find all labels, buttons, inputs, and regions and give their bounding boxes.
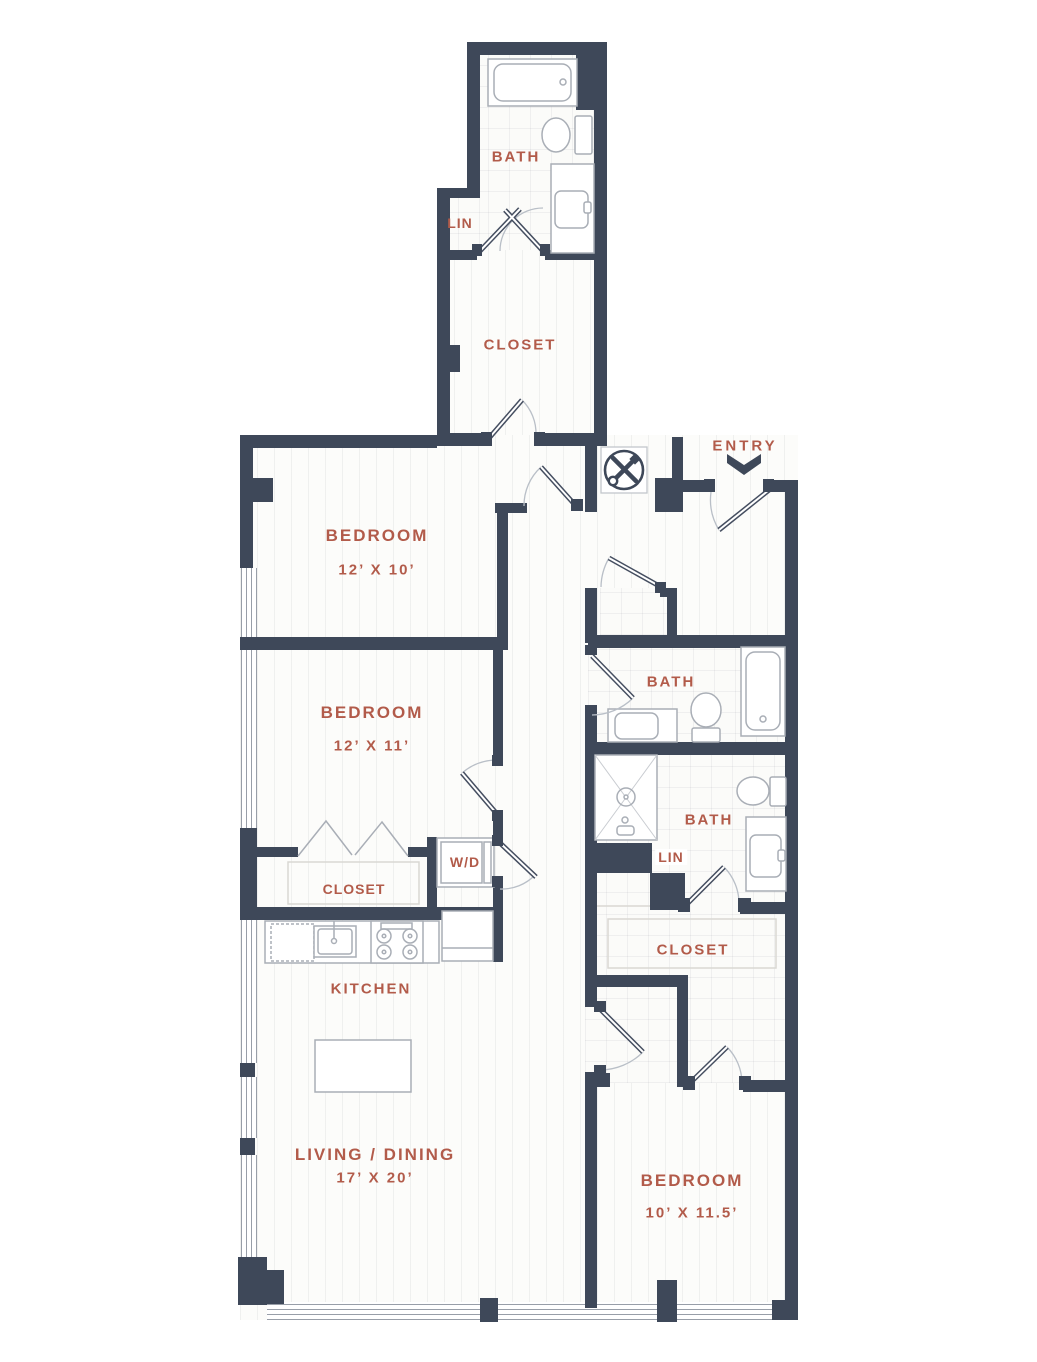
wall-segment <box>493 650 503 762</box>
window <box>241 1155 257 1257</box>
wall-segment <box>595 843 652 873</box>
wall-segment <box>238 1257 267 1305</box>
wall-segment <box>597 1073 610 1087</box>
wall-segment <box>450 250 477 260</box>
wall-segment <box>588 742 798 755</box>
label-lin-top: LIN <box>447 215 473 231</box>
label-living-dining-dims: 17’ X 20’ <box>336 1170 413 1187</box>
wall-segment <box>240 435 253 568</box>
window <box>241 568 257 637</box>
label-bath-2: BATH <box>647 674 696 691</box>
label-washer-dryer: W/D <box>450 854 480 870</box>
floor-bath-3 <box>585 755 798 914</box>
wall-segment <box>497 505 508 640</box>
wall-segment <box>585 648 597 655</box>
wall-segment <box>576 42 607 110</box>
label-living-dining: LIVING / DINING <box>295 1145 455 1165</box>
wall-segment <box>257 907 503 920</box>
label-closet-bed2: CLOSET <box>323 881 386 897</box>
label-bedroom-3-dims: 10’ X 11.5’ <box>646 1205 739 1222</box>
wall-segment <box>493 817 503 837</box>
wall-segment <box>450 345 460 372</box>
wall-segment <box>743 1080 798 1092</box>
label-closet-bed3: CLOSET <box>657 942 730 959</box>
label-kitchen: KITCHEN <box>331 981 412 998</box>
wall-segment <box>467 42 480 188</box>
label-closet-top: CLOSET <box>484 337 557 354</box>
wall-segment <box>240 435 437 448</box>
label-bedroom-1-dims: 12’ X 10’ <box>338 562 415 579</box>
wall-segment <box>408 847 427 857</box>
label-bedroom-2-dims: 12’ X 11’ <box>334 738 410 755</box>
wall-segment <box>240 828 257 920</box>
wall-segment <box>677 987 688 1087</box>
wall-segment <box>240 637 508 650</box>
label-bedroom-2: BEDROOM <box>321 703 424 723</box>
wall-segment <box>545 433 607 446</box>
window <box>241 650 257 828</box>
wall-segment <box>253 478 273 502</box>
label-bath-3: BATH <box>685 812 734 829</box>
wall-segment <box>257 847 298 857</box>
label-lin-2: LIN <box>655 849 687 865</box>
wall-segment <box>588 975 688 987</box>
wall-segment <box>683 480 713 492</box>
wall-segment <box>437 433 490 446</box>
wall-segment <box>240 1063 255 1077</box>
wall-segment <box>493 887 503 962</box>
floor-entry-closet <box>600 588 667 635</box>
wall-segment <box>588 635 798 648</box>
wall-segment <box>655 478 683 512</box>
window <box>267 1302 784 1320</box>
wall-segment <box>545 250 607 260</box>
wall-segment <box>785 480 798 1308</box>
wall-segment <box>585 437 597 512</box>
label-bedroom-3: BEDROOM <box>641 1171 744 1191</box>
wall-segment <box>495 503 527 513</box>
wall-segment <box>650 873 685 910</box>
label-bath-top: BATH <box>492 149 541 166</box>
wall-segment <box>480 1298 498 1322</box>
floor-plan: BATH LIN CLOSET BEDROOM 12’ X 10’ ENTRY … <box>0 0 1037 1362</box>
wall-segment <box>660 588 677 597</box>
label-entry: ENTRY <box>712 438 777 455</box>
wall-segment <box>772 1300 798 1320</box>
wall-segment <box>657 1280 677 1322</box>
wall-segment <box>240 1138 255 1155</box>
wall-segment <box>266 1270 284 1304</box>
floor-bath-2 <box>588 635 798 755</box>
label-bedroom-1: BEDROOM <box>326 526 429 546</box>
wall-segment <box>740 902 798 914</box>
wall-segment <box>585 903 597 1007</box>
window <box>241 920 257 1063</box>
window <box>241 1077 257 1138</box>
wall-segment <box>585 1072 597 1308</box>
wall-segment <box>585 710 597 903</box>
